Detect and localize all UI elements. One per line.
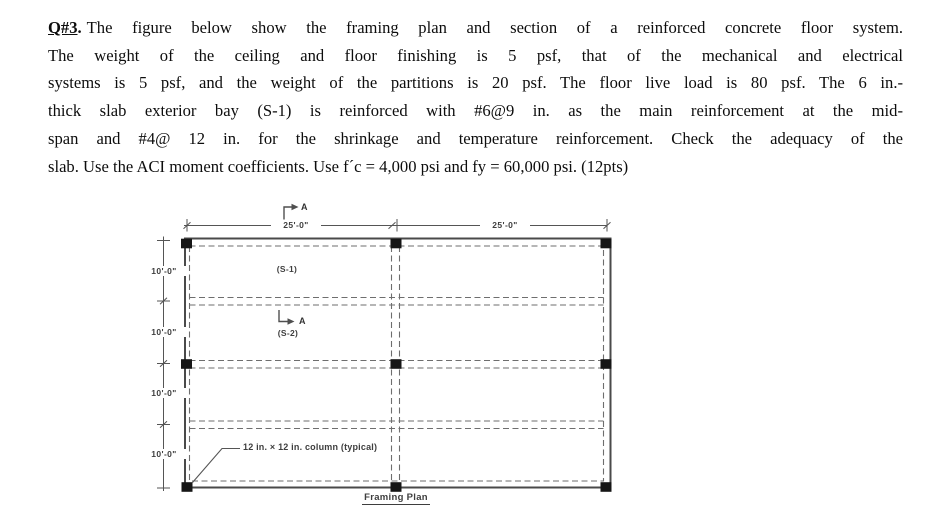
dimension-line-top	[184, 219, 611, 232]
dimension-label-span-2: 25'-0"	[480, 220, 530, 230]
column-note: 12 in. × 12 in. column (typical)	[243, 442, 377, 452]
section-cut-marker-bottom	[279, 310, 295, 325]
column-note-leader	[193, 449, 241, 483]
section-marker-label-top: A	[301, 202, 308, 212]
caption-wrap: Framing Plan	[341, 492, 451, 503]
section-marker-label-bottom: A	[299, 316, 306, 326]
slab-label-s1: (S-1)	[267, 264, 307, 274]
framing-plan-caption: Framing Plan	[362, 492, 430, 505]
dimension-label-bay-4: 10'-0"	[142, 449, 186, 459]
dimension-label-span-1: 25'-0"	[271, 220, 321, 230]
framing-plan-drawing	[0, 0, 947, 523]
dimension-label-bay-2: 10'-0"	[142, 327, 186, 337]
document-page: Q#3.The figure below show the framing pl…	[0, 0, 947, 523]
columns	[181, 239, 612, 492]
dimension-label-bay-1: 10'-0"	[142, 266, 186, 276]
dimension-label-bay-3: 10'-0"	[142, 388, 186, 398]
slab-label-s2: (S-2)	[268, 328, 308, 338]
section-cut-marker-top	[284, 204, 299, 220]
